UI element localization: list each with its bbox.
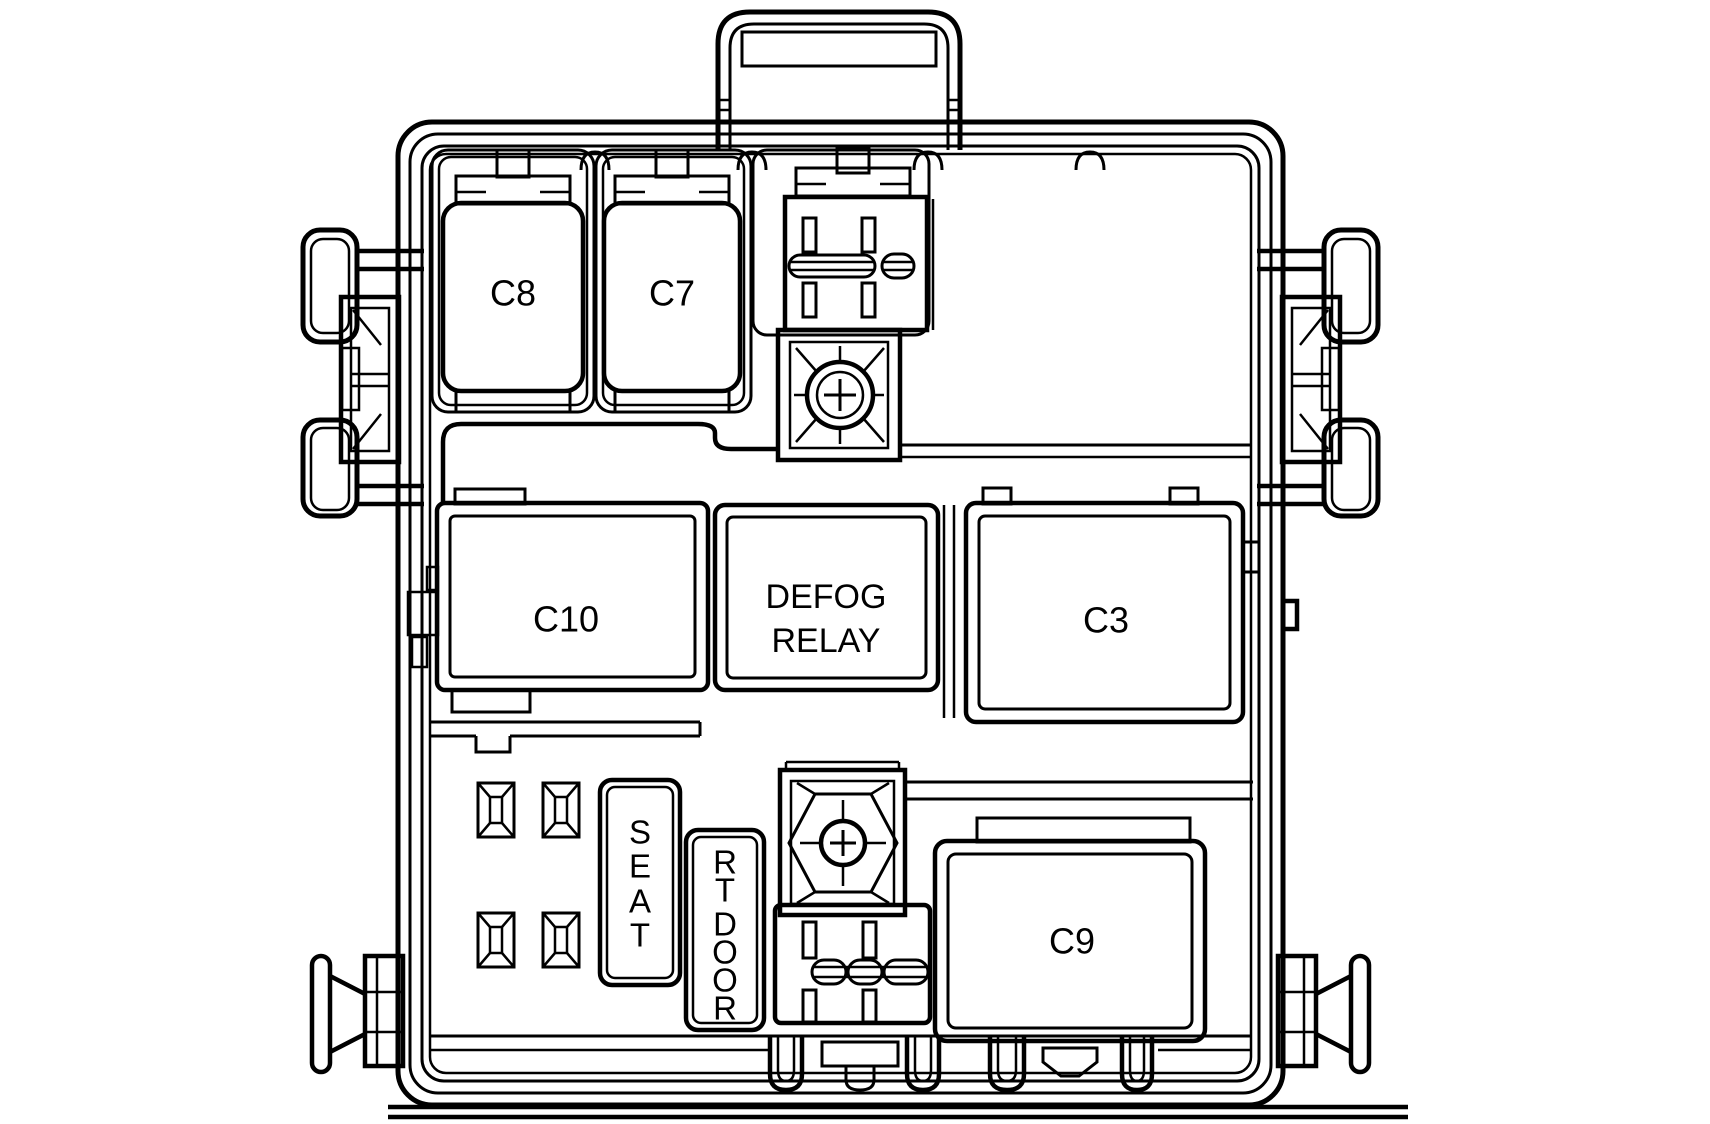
interior-shelf (443, 424, 1251, 503)
bevel-terminal (478, 913, 514, 967)
c8-label: C8 (490, 273, 536, 314)
left-push-pin (312, 956, 403, 1072)
rt-door-label-letter: T (715, 872, 735, 909)
connector-c9: C9 (935, 818, 1205, 1041)
rt-door-label-letter: R (713, 990, 737, 1027)
defog-relay-socket: DEFOG RELAY (715, 505, 938, 690)
bevel-terminals (478, 783, 579, 967)
right-mount-clips (1257, 230, 1378, 516)
bus-lines (905, 782, 1253, 799)
aux-terminal-connector-top (753, 148, 933, 335)
top-handle-tab (718, 12, 960, 150)
defog-relay-label-line2: RELAY (772, 622, 881, 660)
aux-terminal-connector-bottom (775, 905, 930, 1023)
rt-door-connector: R T D O O R (686, 830, 764, 1030)
bevel-terminal (543, 913, 579, 967)
fuse-block-diagram: C8 C7 (0, 0, 1710, 1124)
bevel-terminal (478, 783, 514, 837)
connector-c3: C3 (966, 488, 1297, 722)
left-mount-clips (303, 230, 424, 516)
baseline (388, 1107, 1408, 1117)
bolt-terminal-top (778, 330, 900, 460)
seat-label-letter: S (629, 814, 651, 851)
seat-connector: S E A T (600, 780, 680, 985)
seat-label-letter: T (630, 917, 650, 954)
right-push-pin (1278, 956, 1369, 1072)
c7-label: C7 (649, 273, 695, 314)
seat-label-letter: E (629, 848, 651, 885)
section-divider (430, 722, 700, 752)
c10-label: C10 (533, 599, 599, 640)
defog-relay-label-line1: DEFOG (766, 578, 887, 616)
connector-c8: C8 (432, 150, 594, 412)
bolt-terminal-bottom (780, 762, 905, 915)
seat-label-letter: A (629, 883, 651, 920)
c3-label: C3 (1083, 600, 1129, 641)
connector-c7: C7 (596, 150, 751, 412)
bevel-terminal (543, 783, 579, 837)
c9-label: C9 (1049, 921, 1095, 962)
connector-c10: C10 (437, 489, 708, 712)
